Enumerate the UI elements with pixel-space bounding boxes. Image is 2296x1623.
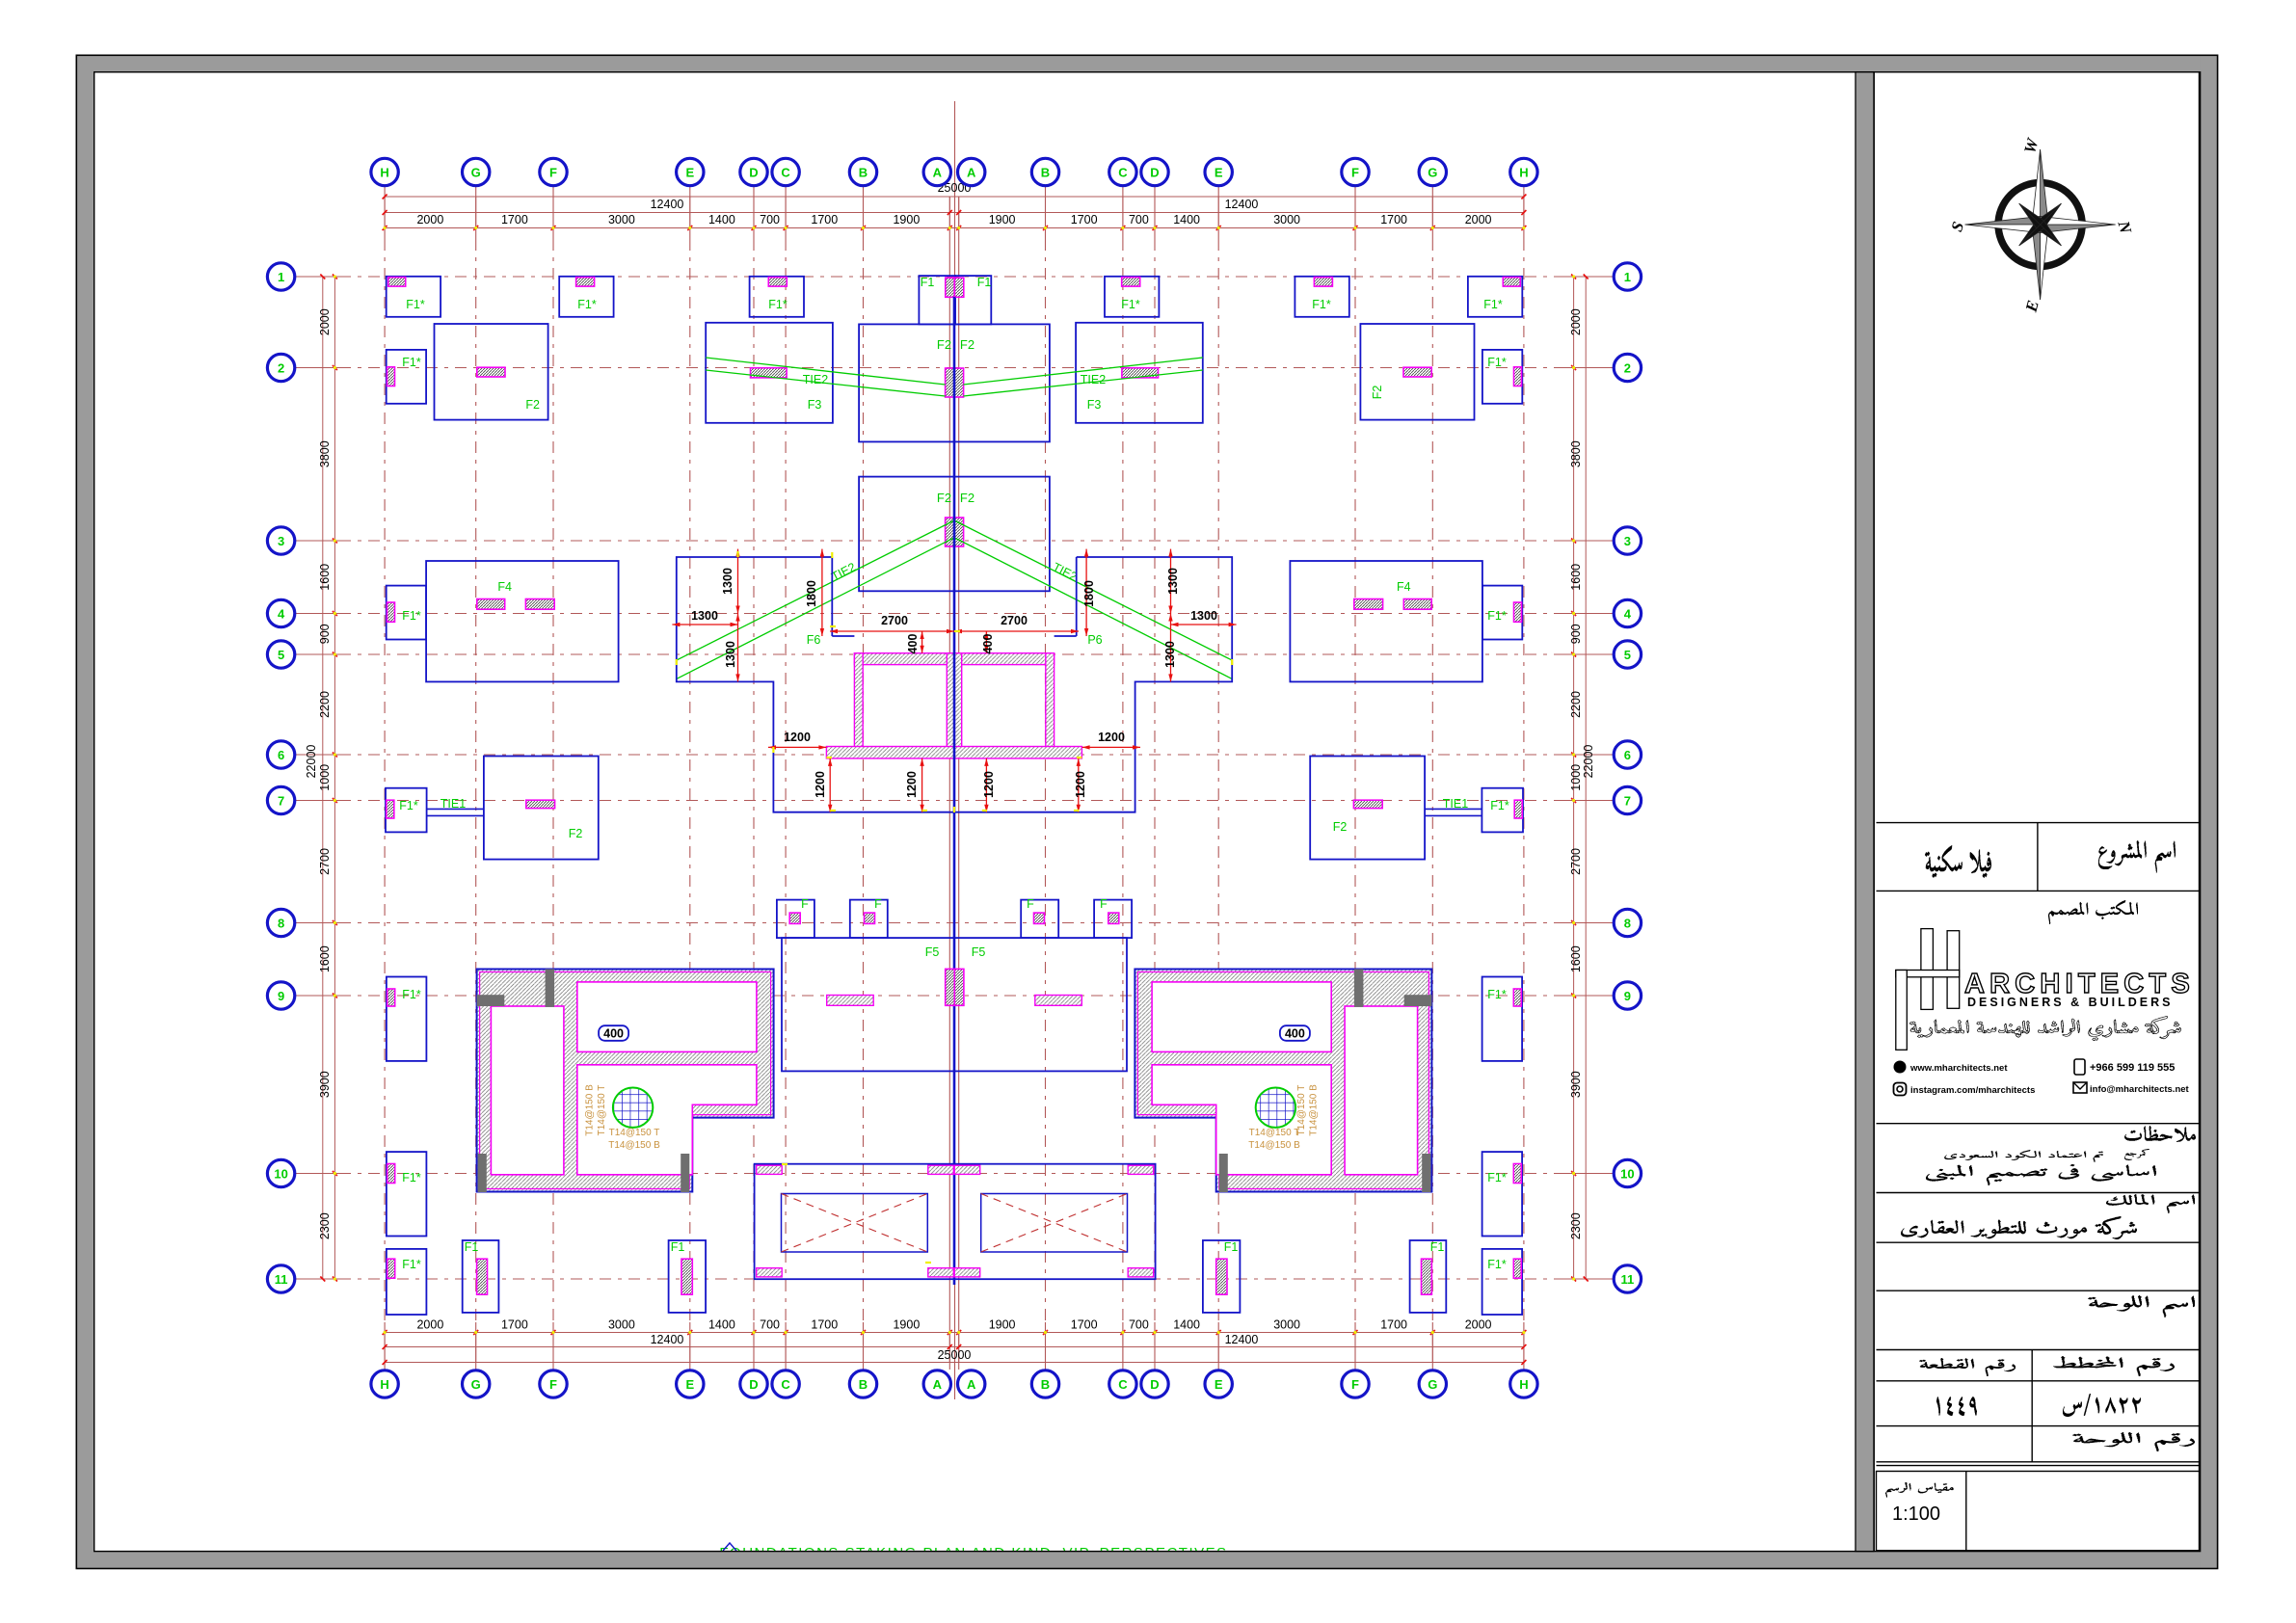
svg-text:F: F [801, 897, 809, 911]
svg-text:1200: 1200 [814, 771, 827, 798]
svg-text:A: A [967, 166, 976, 180]
svg-text:1200: 1200 [1098, 731, 1125, 744]
svg-text:22000: 22000 [305, 745, 318, 779]
svg-text:3800: 3800 [1569, 440, 1583, 467]
svg-text:2700: 2700 [881, 614, 908, 627]
svg-text:F4: F4 [1397, 580, 1411, 594]
svg-text:F1: F1 [1430, 1240, 1445, 1254]
svg-text:12400: 12400 [651, 1333, 684, 1346]
svg-text:C: C [781, 166, 790, 180]
svg-text:1800: 1800 [1082, 580, 1096, 607]
svg-text:1: 1 [1624, 270, 1631, 284]
svg-text:1600: 1600 [318, 564, 332, 591]
svg-text:1900: 1900 [893, 1318, 920, 1332]
svg-text:3900: 3900 [318, 1071, 332, 1098]
svg-text:H: H [1519, 166, 1528, 180]
svg-text:12400: 12400 [651, 198, 684, 211]
svg-text:1200: 1200 [784, 731, 811, 744]
svg-text:B: B [1041, 1377, 1050, 1392]
svg-text:2000: 2000 [416, 1318, 443, 1332]
svg-text:F1: F1 [977, 276, 992, 289]
svg-text:900: 900 [1569, 624, 1583, 644]
svg-text:3: 3 [1624, 534, 1631, 548]
svg-text:3000: 3000 [608, 1318, 635, 1332]
svg-text:400: 400 [603, 1027, 624, 1041]
svg-text:F1*: F1* [402, 609, 421, 623]
svg-text:www.mharchitects.net: www.mharchitects.net [1909, 1063, 2008, 1074]
svg-text:1700: 1700 [1380, 1318, 1407, 1332]
svg-text:1600: 1600 [318, 945, 332, 972]
svg-text:2200: 2200 [1569, 691, 1583, 718]
svg-text:F6: F6 [807, 633, 821, 647]
svg-text:T14@150 T: T14@150 T [1249, 1128, 1300, 1138]
svg-text:1700: 1700 [811, 213, 838, 226]
svg-text:1600: 1600 [1569, 945, 1583, 972]
svg-text:2: 2 [278, 361, 284, 376]
svg-text:10: 10 [1620, 1167, 1634, 1182]
svg-text:700: 700 [1129, 213, 1149, 226]
svg-text:1300: 1300 [1163, 641, 1177, 668]
svg-text:F1*: F1* [1483, 298, 1503, 311]
svg-text:1200: 1200 [982, 771, 996, 798]
svg-text:F4: F4 [497, 580, 512, 594]
svg-text:1400: 1400 [1173, 213, 1200, 226]
svg-text:9: 9 [278, 989, 284, 1003]
svg-text:F1*: F1* [399, 799, 418, 812]
svg-text:F1*: F1* [402, 988, 421, 1001]
svg-text:1700: 1700 [1071, 1318, 1098, 1332]
svg-text:F1*: F1* [1121, 298, 1140, 311]
svg-text:C: C [1118, 166, 1128, 180]
svg-text:2300: 2300 [318, 1212, 332, 1239]
svg-text:T14@150 T: T14@150 T [597, 1085, 607, 1136]
svg-text:6: 6 [278, 748, 284, 762]
svg-text:F1*: F1* [577, 298, 597, 311]
svg-text:6: 6 [1624, 748, 1631, 762]
svg-text:instagram.com/mharchitects: instagram.com/mharchitects [1910, 1085, 2035, 1096]
svg-text:D: D [1150, 166, 1159, 180]
svg-text:1700: 1700 [1380, 213, 1407, 226]
svg-text:2000: 2000 [1465, 1318, 1492, 1332]
svg-text:1700: 1700 [1071, 213, 1098, 226]
svg-text:F1*: F1* [1312, 298, 1331, 311]
svg-text:TIE1: TIE1 [1443, 797, 1468, 811]
svg-text:A: A [967, 1377, 976, 1392]
svg-text:info@mharchitects.net: info@mharchitects.net [2090, 1084, 2190, 1095]
svg-text:H: H [380, 1377, 388, 1392]
svg-text:700: 700 [760, 213, 780, 226]
svg-text:F1*: F1* [402, 1171, 421, 1184]
svg-text:11: 11 [275, 1272, 288, 1287]
svg-text:G: G [1428, 1377, 1437, 1392]
svg-text:2700: 2700 [1569, 848, 1583, 875]
svg-text:F: F [1351, 1377, 1359, 1392]
svg-text:22000: 22000 [1582, 745, 1595, 779]
svg-text:C: C [781, 1377, 790, 1392]
svg-text:F2: F2 [1371, 386, 1384, 400]
svg-text:F1*: F1* [406, 298, 425, 311]
svg-text:P6: P6 [1087, 633, 1102, 647]
svg-text:8: 8 [278, 917, 284, 931]
svg-text:TIE1: TIE1 [441, 797, 466, 811]
svg-text:7: 7 [278, 794, 284, 809]
svg-text:E: E [685, 166, 694, 180]
svg-text:F1*: F1* [1487, 988, 1507, 1001]
svg-text:T14@150 B: T14@150 B [608, 1140, 660, 1151]
svg-text:F2: F2 [937, 337, 951, 352]
svg-text:F1*: F1* [1487, 356, 1507, 369]
svg-text:F: F [549, 166, 557, 180]
svg-text:5: 5 [1624, 648, 1631, 662]
svg-text:DESIGNERS & BUILDERS: DESIGNERS & BUILDERS [1967, 996, 2174, 1009]
svg-text:F2: F2 [525, 398, 540, 412]
svg-text:2200: 2200 [318, 691, 332, 718]
svg-text:2700: 2700 [318, 848, 332, 875]
svg-text:3000: 3000 [608, 213, 635, 226]
svg-text:3900: 3900 [1569, 1071, 1583, 1098]
svg-text:F: F [1027, 897, 1034, 911]
svg-text:E: E [685, 1377, 694, 1392]
svg-text:2000: 2000 [1569, 308, 1583, 335]
svg-text:10: 10 [274, 1167, 287, 1182]
svg-text:F5: F5 [972, 945, 986, 959]
svg-text:F2: F2 [960, 491, 974, 505]
svg-text:G: G [471, 1377, 481, 1392]
svg-text:D: D [749, 166, 758, 180]
svg-text:1900: 1900 [893, 213, 920, 226]
svg-text:F: F [1351, 166, 1359, 180]
svg-text:F5: F5 [925, 945, 940, 959]
svg-text:D: D [749, 1377, 758, 1392]
svg-text:5: 5 [278, 648, 284, 662]
svg-text:F3: F3 [1087, 398, 1102, 412]
svg-text:4: 4 [278, 607, 285, 622]
svg-text:1700: 1700 [501, 1318, 528, 1332]
svg-text:F1*: F1* [402, 1258, 421, 1271]
svg-text:1300: 1300 [1166, 568, 1180, 595]
svg-text:TIE2: TIE2 [803, 373, 828, 386]
svg-text:12400: 12400 [1225, 1333, 1259, 1346]
svg-text:F1*: F1* [1490, 799, 1509, 812]
svg-text:25000: 25000 [938, 1348, 972, 1362]
svg-text:400: 400 [981, 634, 995, 654]
svg-text:H: H [1519, 1377, 1528, 1392]
svg-text:4: 4 [1624, 607, 1632, 622]
svg-text:G: G [471, 166, 481, 180]
svg-text:C: C [1118, 1377, 1128, 1392]
svg-text:12400: 12400 [1225, 198, 1259, 211]
svg-text:2700: 2700 [1001, 614, 1028, 627]
svg-text:2000: 2000 [416, 213, 443, 226]
svg-text:F2: F2 [569, 827, 583, 840]
svg-text:+966 599 119 555: +966 599 119 555 [2090, 1062, 2175, 1074]
svg-text:H: H [380, 166, 388, 180]
svg-text:T14@150 B: T14@150 B [1248, 1140, 1300, 1151]
svg-text:A: A [933, 1377, 943, 1392]
svg-text:A: A [933, 166, 943, 180]
svg-text:1300: 1300 [721, 568, 734, 595]
svg-text:400: 400 [906, 634, 920, 654]
svg-text:1:100: 1:100 [1892, 1503, 1940, 1525]
svg-text:1200: 1200 [1074, 771, 1087, 798]
svg-text:400: 400 [1285, 1027, 1305, 1041]
svg-text:2: 2 [1624, 361, 1631, 376]
svg-text:1200: 1200 [905, 771, 919, 798]
svg-text:D: D [1150, 1377, 1159, 1392]
svg-text:F1*: F1* [1487, 1171, 1507, 1184]
svg-text:TIE2: TIE2 [1081, 373, 1106, 386]
svg-text:F2: F2 [937, 491, 951, 505]
svg-text:F1*: F1* [768, 298, 788, 311]
svg-text:1800: 1800 [805, 580, 818, 607]
svg-text:F: F [549, 1377, 557, 1392]
svg-text:1: 1 [278, 270, 284, 284]
svg-text:E: E [1215, 1377, 1223, 1392]
svg-text:1000: 1000 [318, 764, 332, 791]
svg-text:1400: 1400 [708, 213, 735, 226]
svg-text:F1: F1 [671, 1240, 685, 1254]
svg-text:F: F [874, 897, 882, 911]
svg-text:F2: F2 [960, 337, 974, 352]
svg-text:F1: F1 [465, 1240, 479, 1254]
svg-text:1600: 1600 [1569, 564, 1583, 591]
svg-text:700: 700 [1129, 1318, 1149, 1332]
svg-text:3: 3 [278, 534, 284, 548]
svg-text:8: 8 [1624, 917, 1631, 931]
svg-text:F3: F3 [808, 398, 822, 412]
svg-text:11: 11 [1621, 1272, 1635, 1287]
svg-text:2300: 2300 [1569, 1212, 1583, 1239]
svg-text:7: 7 [1624, 794, 1631, 809]
svg-text:1300: 1300 [691, 609, 718, 623]
svg-text:B: B [859, 1377, 868, 1392]
svg-text:2000: 2000 [1465, 213, 1492, 226]
svg-text:700: 700 [760, 1318, 780, 1332]
svg-text:1300: 1300 [724, 641, 737, 668]
svg-text:F1: F1 [921, 276, 935, 289]
svg-text:B: B [859, 166, 868, 180]
svg-text:F1: F1 [1224, 1240, 1239, 1254]
svg-text:1900: 1900 [989, 213, 1016, 226]
svg-text:T14@150 T: T14@150 T [609, 1128, 660, 1138]
svg-text:T14@150 B: T14@150 B [585, 1084, 596, 1136]
svg-text:9: 9 [1624, 989, 1631, 1003]
svg-text:F2: F2 [1333, 820, 1348, 834]
svg-text:3800: 3800 [318, 440, 332, 467]
svg-text:1700: 1700 [811, 1318, 838, 1332]
svg-text:F1*: F1* [402, 356, 421, 369]
svg-text:3000: 3000 [1273, 213, 1300, 226]
svg-text:1300: 1300 [1190, 609, 1217, 623]
svg-text:F1*: F1* [1487, 609, 1507, 623]
svg-text:F: F [1100, 897, 1108, 911]
svg-text:G: G [1428, 166, 1437, 180]
svg-text:3000: 3000 [1273, 1318, 1300, 1332]
svg-text:F1*: F1* [1487, 1258, 1507, 1271]
svg-text:1400: 1400 [708, 1318, 735, 1332]
svg-text:1400: 1400 [1173, 1318, 1200, 1332]
svg-text:900: 900 [318, 624, 332, 644]
svg-text:1700: 1700 [501, 213, 528, 226]
svg-text:E: E [1215, 166, 1223, 180]
svg-text:T14@150 B: T14@150 B [1309, 1084, 1320, 1136]
svg-text:2000: 2000 [318, 308, 332, 335]
svg-text:1900: 1900 [989, 1318, 1016, 1332]
svg-text:1000: 1000 [1569, 764, 1583, 791]
svg-text:B: B [1041, 166, 1050, 180]
